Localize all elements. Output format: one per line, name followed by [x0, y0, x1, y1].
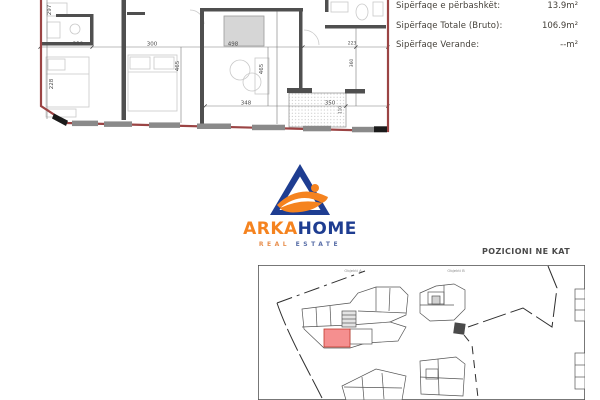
site-plan-title: POZICIONI NE KAT [482, 247, 600, 256]
info-label: Sipërfaqe Verande: [396, 40, 479, 50]
info-row-total-area: Sipërfaqe Totale (Bruto): 106.9m² [396, 21, 578, 31]
dim-label: 110 [338, 106, 343, 114]
dim-label: 350 [325, 101, 336, 107]
area-info-panel: Sipërfaqe e përbashkët: 13.9m² Sipërfaqe… [396, 1, 578, 60]
site-plan-drawing: Objekti A Objekti B [258, 265, 585, 400]
dim-label: 228 [49, 78, 55, 89]
brand-name-home: HOME [298, 219, 357, 239]
utility-square [453, 322, 465, 334]
highlighted-unit [324, 329, 350, 347]
tagline-real: REAL [259, 241, 290, 248]
dim-label: 465 [259, 63, 265, 74]
info-row-common-area: Sipërfaqe e përbashkët: 13.9m² [396, 1, 578, 11]
info-label: Sipërfaqe e përbashkët: [396, 1, 500, 11]
dim-label: 348 [241, 101, 252, 107]
info-value: --m² [560, 40, 578, 50]
building-d-outline [420, 357, 465, 396]
dim-label: 360 [349, 59, 355, 68]
dim-label: 223 [348, 41, 357, 47]
brand-name: ARKAHOME [230, 221, 370, 238]
dim-label: 297 [47, 4, 53, 15]
arkahome-logo: ARKAHOME REAL ESTATE [230, 163, 370, 248]
dim-label: 300 [147, 42, 158, 48]
logo-triangle-icon [268, 163, 332, 218]
info-value: 13.9m² [547, 1, 578, 11]
dim-label: 339 [73, 42, 84, 48]
info-row-veranda-area: Sipërfaqe Verande: --m² [396, 40, 578, 50]
brochure-page: 339 300 498 223 348 350 297 228 465 465 … [0, 0, 600, 400]
building-b-label: Objekti B [447, 268, 465, 273]
info-value: 106.9m² [542, 21, 578, 31]
brand-tagline: REAL ESTATE [230, 241, 370, 248]
tagline-estate: ESTATE [296, 241, 341, 248]
info-label: Sipërfaqe Totale (Bruto): [396, 21, 502, 31]
brand-name-arka: ARKA [243, 219, 298, 239]
building-a-label: Objekti A [344, 268, 362, 273]
dim-label: 465 [175, 60, 181, 71]
floor-plan-drawing: 339 300 498 223 348 350 297 228 465 465 … [0, 0, 392, 136]
corner-block-left [52, 114, 68, 127]
corner-block-right [374, 126, 387, 132]
dim-label: 498 [228, 42, 239, 48]
